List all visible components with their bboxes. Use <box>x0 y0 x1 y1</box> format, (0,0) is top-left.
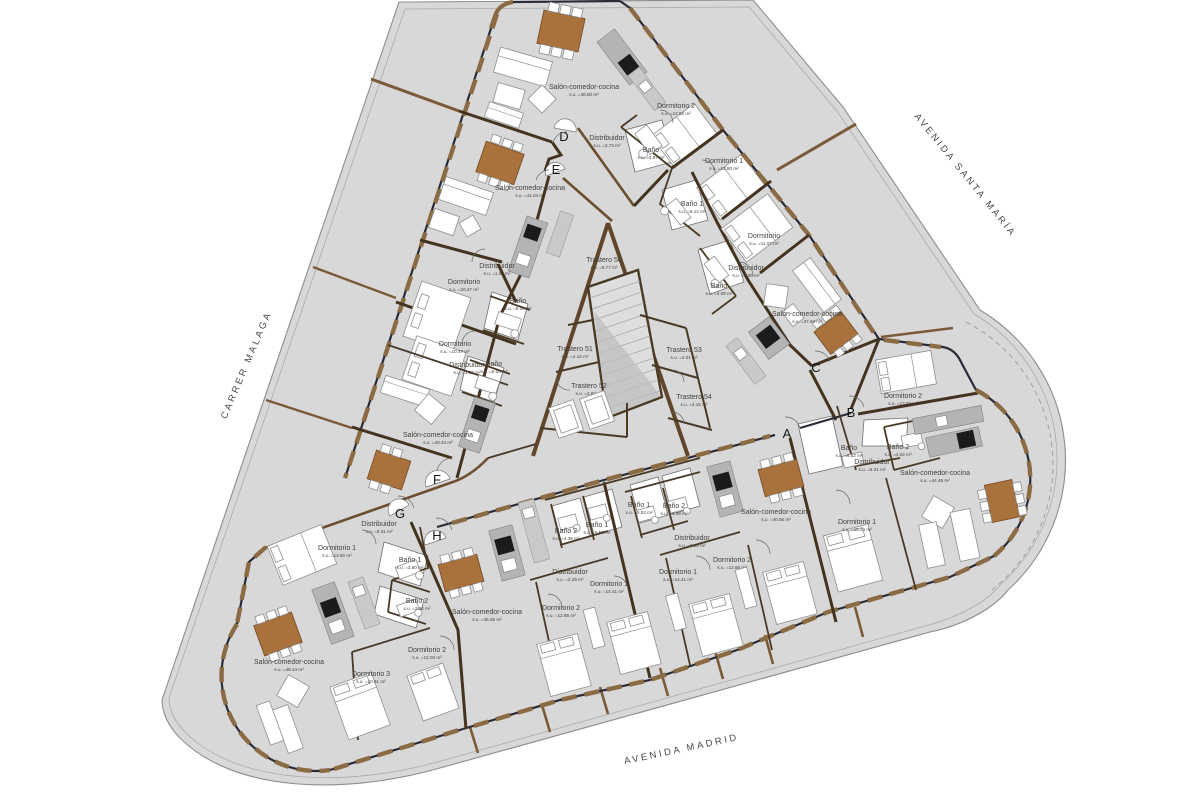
svg-text:Dormitorio 1: Dormitorio 1 <box>705 158 743 165</box>
svg-text:s.u. =11.07 m²: s.u. =11.07 m² <box>749 241 779 246</box>
svg-text:s.u. =37.94 m²: s.u. =37.94 m² <box>792 319 822 324</box>
svg-text:Distribuidor: Distribuidor <box>589 135 625 142</box>
svg-text:Baño: Baño <box>711 283 727 290</box>
svg-text:Distribuidor: Distribuidor <box>361 521 397 528</box>
svg-text:Trastero 52: Trastero 52 <box>571 383 607 390</box>
svg-text:s.u. =3.94 m²: s.u. =3.94 m² <box>404 606 431 611</box>
svg-text:s.u. =40.56 m²: s.u. =40.56 m² <box>761 517 791 522</box>
svg-text:F: F <box>433 472 441 487</box>
svg-text:s.u. =3.97 m²: s.u. =3.97 m² <box>638 155 665 160</box>
svg-text:s.u. =3.90 m²: s.u. =3.90 m² <box>397 565 424 570</box>
svg-text:AVENIDA MADRID: AVENIDA MADRID <box>623 732 740 767</box>
svg-text:s.u. =40.43 m²: s.u. =40.43 m² <box>423 440 453 445</box>
svg-text:s.u. =12.03 m²: s.u. =12.03 m² <box>412 655 442 660</box>
svg-text:Salón-comedor-cocina: Salón-comedor-cocina <box>403 432 473 439</box>
svg-text:Trastero 51: Trastero 51 <box>557 346 593 353</box>
svg-text:Dormitorio 2: Dormitorio 2 <box>713 557 751 564</box>
svg-text:Dormitorio: Dormitorio <box>439 341 471 348</box>
svg-text:D: D <box>559 129 568 144</box>
svg-text:Salón-comedor-cocina: Salón-comedor-cocina <box>495 185 565 192</box>
svg-text:Baño 2: Baño 2 <box>555 528 577 535</box>
svg-text:Baño 2: Baño 2 <box>887 444 909 451</box>
svg-text:Dormitorio 2: Dormitorio 2 <box>542 605 580 612</box>
svg-text:Baño: Baño <box>643 147 659 154</box>
svg-text:s.u. =8.21 m²: s.u. =8.21 m² <box>859 467 886 472</box>
svg-text:H: H <box>432 528 441 543</box>
svg-text:Dormitorio 2: Dormitorio 2 <box>408 647 446 654</box>
svg-text:Dormitorio 3: Dormitorio 3 <box>352 671 390 678</box>
svg-text:s.u. =44.46 m²: s.u. =44.46 m² <box>920 478 950 483</box>
svg-text:s.u. =45.05 m²: s.u. =45.05 m² <box>472 617 502 622</box>
svg-text:Trastero 53: Trastero 53 <box>666 347 702 354</box>
svg-text:E: E <box>552 162 561 177</box>
svg-text:s.u. =5.53 m²: s.u. =5.53 m² <box>626 510 653 515</box>
svg-text:Trastero 54: Trastero 54 <box>676 394 712 401</box>
svg-text:s.u. =13.92 m²: s.u. =13.92 m² <box>888 401 918 406</box>
svg-text:Baño 1: Baño 1 <box>586 522 608 529</box>
svg-text:Baño 1: Baño 1 <box>628 502 650 509</box>
svg-text:s.u. =13.60 m²: s.u. =13.60 m² <box>322 553 352 558</box>
svg-text:Dormitorio 2: Dormitorio 2 <box>884 393 922 400</box>
svg-text:s.u. =5.12 m²: s.u. =5.12 m² <box>679 209 706 214</box>
svg-text:s.u. =9.77 m²: s.u. =9.77 m² <box>591 265 618 270</box>
svg-text:Salón-comedor-cocina: Salón-comedor-cocina <box>254 659 324 666</box>
svg-text:Dormitorio 1: Dormitorio 1 <box>659 569 697 576</box>
svg-text:s.u. =10.47 m²: s.u. =10.47 m² <box>449 287 479 292</box>
svg-text:s.u. =5.04 m²: s.u. =5.04 m² <box>481 369 508 374</box>
svg-text:Baño: Baño <box>841 445 857 452</box>
svg-text:Baño 1: Baño 1 <box>681 201 703 208</box>
svg-text:Dormitorio 1: Dormitorio 1 <box>318 545 356 552</box>
svg-text:Salón-comedor-cocina: Salón-comedor-cocina <box>772 311 842 318</box>
svg-text:s.u. =1.06 m²: s.u. =1.06 m² <box>454 370 481 375</box>
svg-text:AVENIDA SANTA MARÍA: AVENIDA SANTA MARÍA <box>912 111 1019 239</box>
svg-text:s.u. =2.29 m²: s.u. =2.29 m² <box>557 577 584 582</box>
svg-text:s.u. =4.09 m²: s.u. =4.09 m² <box>706 291 733 296</box>
svg-text:s.u. =9.31 m²: s.u. =9.31 m² <box>366 529 393 534</box>
svg-text:Baño 1: Baño 1 <box>399 557 421 564</box>
svg-text:Baño: Baño <box>486 361 502 368</box>
svg-text:Distribuidor: Distribuidor <box>674 535 710 542</box>
svg-text:s.u. =10.47 m²: s.u. =10.47 m² <box>440 349 470 354</box>
svg-text:C: C <box>811 360 820 375</box>
svg-text:s.u. =12.86 m²: s.u. =12.86 m² <box>546 613 576 618</box>
svg-text:Salón-comedor-cocina: Salón-comedor-cocina <box>549 84 619 91</box>
svg-text:Baño 2: Baño 2 <box>406 598 428 605</box>
svg-text:s.u. =15.24 m²: s.u. =15.24 m² <box>842 527 872 532</box>
svg-text:s.u. =4.16 m²: s.u. =4.16 m² <box>562 354 589 359</box>
svg-text:s.u. =12.92 m²: s.u. =12.92 m² <box>661 111 691 116</box>
svg-text:Dormitorio: Dormitorio <box>748 233 780 240</box>
svg-text:B: B <box>847 405 856 420</box>
svg-text:Distribuidor: Distribuidor <box>854 459 890 466</box>
svg-text:Distribuidor: Distribuidor <box>479 263 515 270</box>
svg-text:s.u. =46.80 m²: s.u. =46.80 m² <box>569 92 599 97</box>
svg-text:s.u. =5.53 m²: s.u. =5.53 m² <box>584 530 611 535</box>
svg-text:Trastero 50: Trastero 50 <box>586 257 622 264</box>
svg-text:s.u. =14.41 m²: s.u. =14.41 m² <box>594 589 624 594</box>
svg-text:s.u. =4.38 m²: s.u. =4.38 m² <box>661 511 688 516</box>
svg-text:Salón-comedor-cocina: Salón-comedor-cocina <box>452 609 522 616</box>
svg-text:Baño 2: Baño 2 <box>663 503 685 510</box>
svg-text:s.u. =1.05 m²: s.u. =1.05 m² <box>733 273 760 278</box>
svg-text:Dormitorio: Dormitorio <box>448 279 480 286</box>
svg-text:A: A <box>783 426 792 441</box>
svg-text:G: G <box>395 506 405 521</box>
svg-text:Distribuidor: Distribuidor <box>728 265 764 272</box>
svg-text:Dormitorio 1: Dormitorio 1 <box>838 519 876 526</box>
svg-text:Dormitorio 1: Dormitorio 1 <box>590 581 628 588</box>
svg-text:s.u. =41.04 m²: s.u. =41.04 m² <box>515 193 545 198</box>
svg-text:s.u. =48.14 m²: s.u. =48.14 m² <box>274 667 304 672</box>
svg-text:Distribuidor: Distribuidor <box>449 362 485 369</box>
svg-text:s.u. =6.52 m²: s.u. =6.52 m² <box>836 453 863 458</box>
svg-text:s.u. =4.38 m²: s.u. =4.38 m² <box>553 536 580 541</box>
svg-text:s.u. =10.61 m²: s.u. =10.61 m² <box>356 679 386 684</box>
svg-text:Salón-comedor-cocina: Salón-comedor-cocina <box>900 470 970 477</box>
svg-text:s.u. =1.06 m²: s.u. =1.06 m² <box>484 271 511 276</box>
svg-text:s.u. =14.41 m²: s.u. =14.41 m² <box>663 577 693 582</box>
svg-text:s.u. =5.04 m²: s.u. =5.04 m² <box>505 306 532 311</box>
svg-text:s.u. =4.02 m²: s.u. =4.02 m² <box>885 452 912 457</box>
svg-text:Baño: Baño <box>510 298 526 305</box>
svg-text:Dormitorio 2: Dormitorio 2 <box>657 103 695 110</box>
svg-text:Salón-comedor-cocina: Salón-comedor-cocina <box>741 509 811 516</box>
svg-text:s.u. =3.73 m²: s.u. =3.73 m² <box>594 143 621 148</box>
